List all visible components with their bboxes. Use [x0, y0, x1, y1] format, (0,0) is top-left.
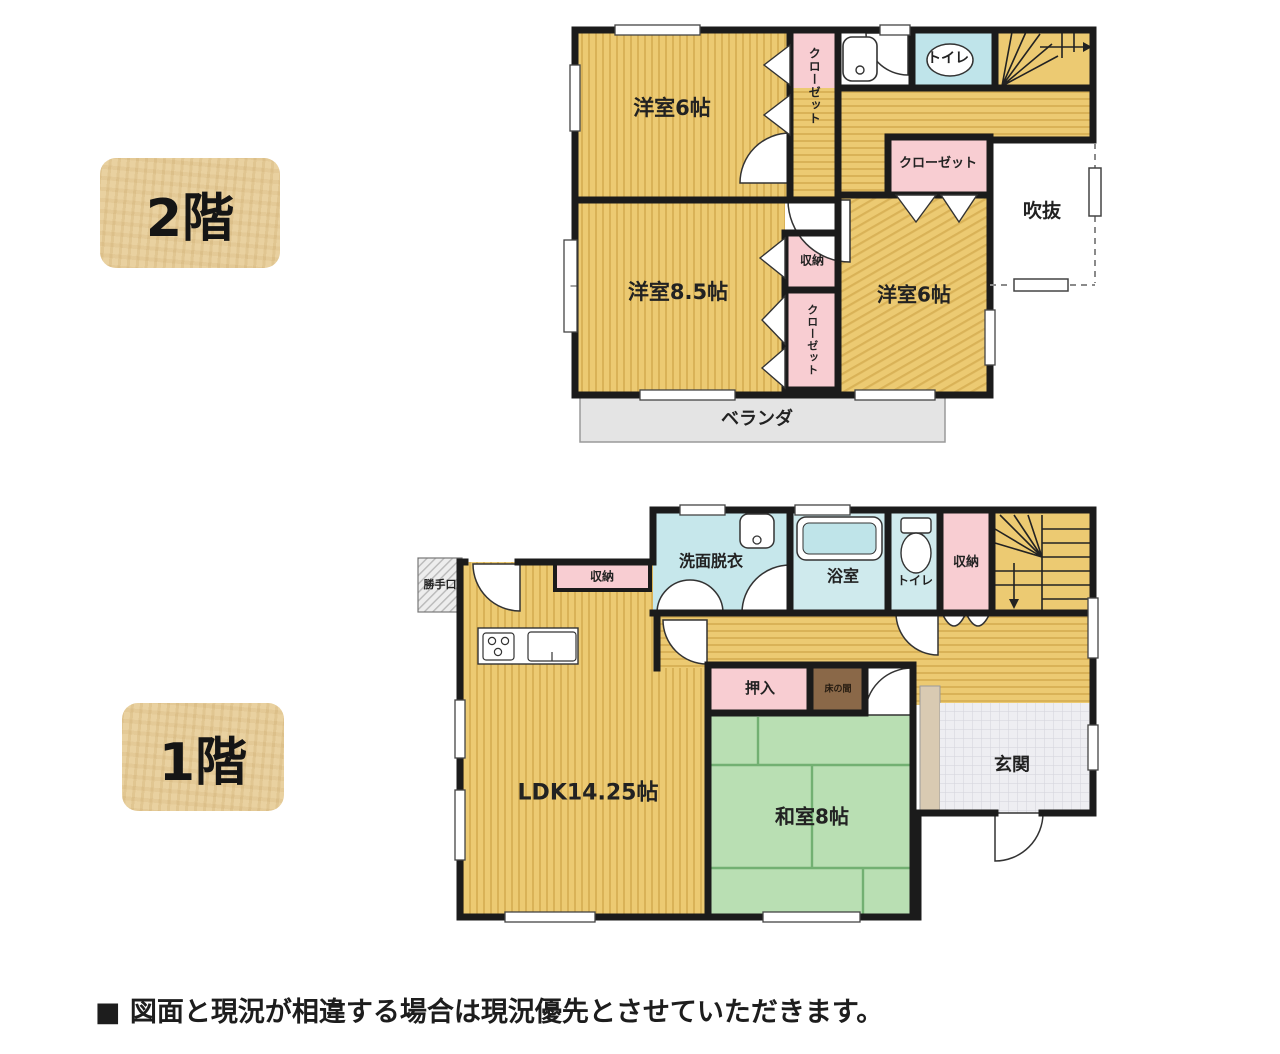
label-back-door: 勝手口	[424, 579, 457, 591]
label-closet-center-2f: クローゼット	[806, 304, 818, 376]
label-storage-2f: 収納	[800, 255, 824, 268]
label-atrium: 吹抜	[1023, 202, 1061, 222]
floor2-badge-label: 2階	[146, 176, 234, 251]
floorplan-canvas: 2階 1階 洋室6帖 クローゼット トイレ クローゼット 吹抜 洋室8.5帖 収…	[0, 0, 1280, 1054]
kitchen-sink-icon	[528, 632, 576, 661]
label-toilet-1f: トイレ	[897, 575, 933, 588]
stove-icon	[483, 633, 514, 660]
label-oshiire: 押入	[745, 681, 775, 697]
floor1-badge: 1階	[122, 703, 284, 811]
kitchen-counter	[478, 628, 578, 664]
bathtub-icon	[797, 517, 882, 560]
label-entrance: 玄関	[994, 757, 1030, 776]
entrance-step	[920, 686, 940, 812]
label-washroom: 洗面脱衣	[679, 554, 743, 571]
label-toilet-2f: トイレ	[927, 52, 969, 67]
floor1-plan	[418, 505, 1098, 922]
washbasin-icon-1f	[740, 514, 774, 548]
toilet-icon-1f	[901, 518, 931, 573]
disclaimer-text: ■ 図面と現況が相違する場合は現況優先とさせていただきます。	[95, 990, 883, 1029]
floor2-badge: 2階	[100, 158, 280, 268]
label-closet-mid-2f: クローゼット	[899, 157, 977, 171]
label-bedroom-right-2f: 洋室6帖	[877, 285, 951, 306]
label-bedroom-left-2f: 洋室8.5帖	[628, 281, 728, 303]
label-closet-top-2f: クローゼット	[808, 47, 821, 125]
label-tokonoma: 床の間	[824, 685, 851, 694]
label-washitsu: 和室8帖	[775, 807, 849, 828]
label-bedroom-top-2f: 洋室6帖	[633, 97, 711, 119]
washbasin-icon	[843, 37, 877, 81]
label-veranda: ベランダ	[721, 411, 793, 430]
floor2-plan	[564, 25, 1101, 442]
label-bathroom: 浴室	[827, 569, 859, 586]
label-storage-kitchen: 収納	[590, 571, 614, 584]
floor1-badge-label: 1階	[159, 720, 247, 795]
label-ldk: LDK14.25帖	[518, 781, 659, 804]
label-storage-hall: 収納	[953, 556, 979, 570]
